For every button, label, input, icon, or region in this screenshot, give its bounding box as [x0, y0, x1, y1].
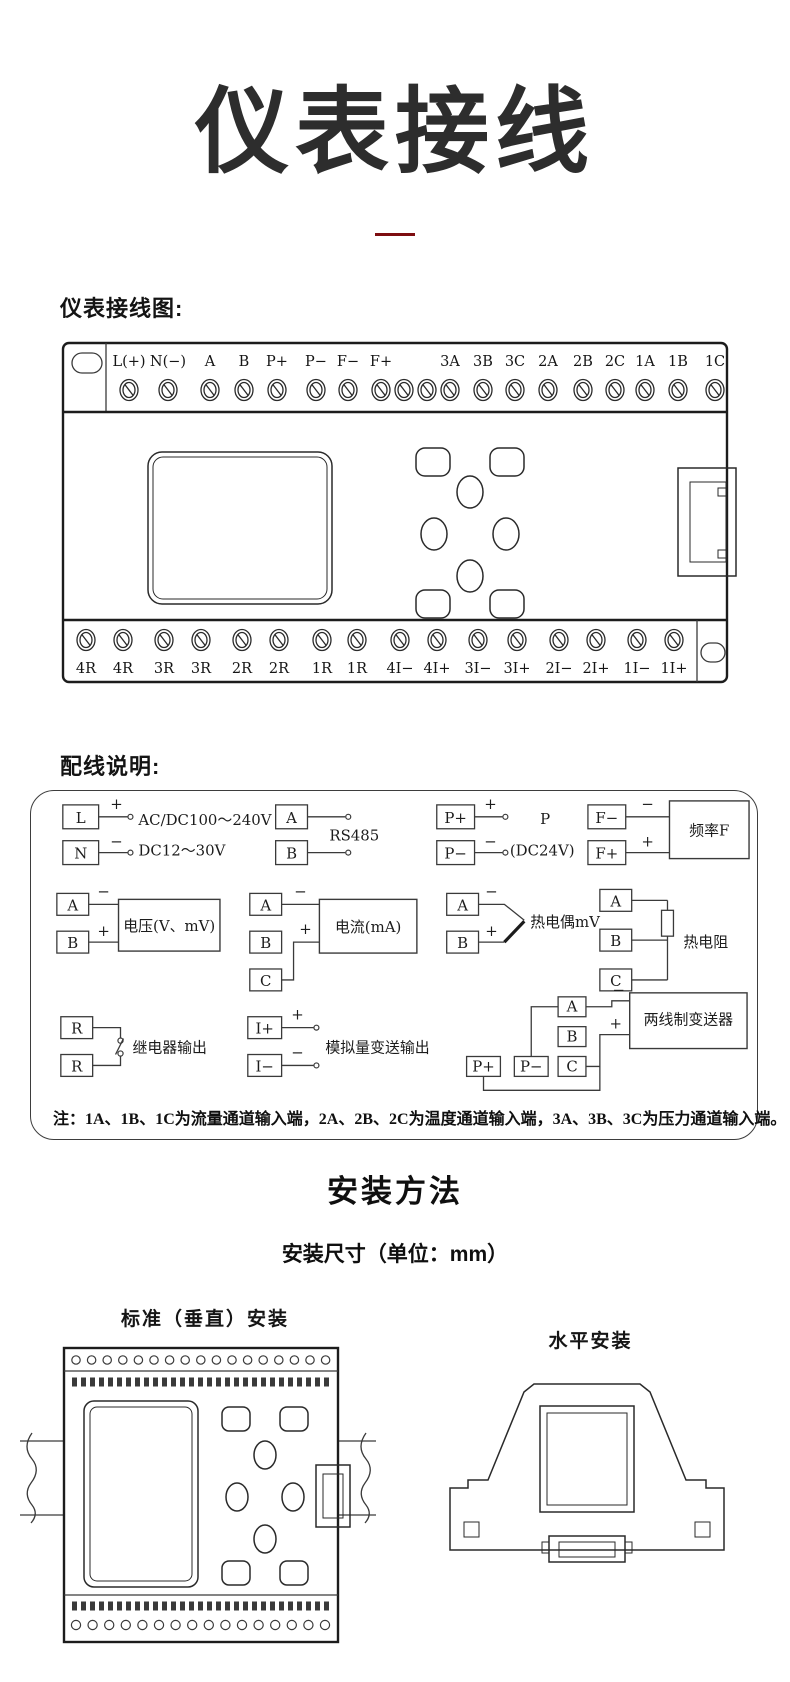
svg-text:3B: 3B [473, 354, 493, 370]
svg-text:A: A [285, 809, 297, 827]
manual-page: 仪表接线 仪表接线图: L(+) N(−) A B P+ P− F− F+ 3A… [0, 0, 790, 1682]
keypad-buttons [222, 1407, 308, 1585]
group-24v-supply: P+ + P− − P (DC24V) [437, 795, 575, 865]
group-frequency-input: F− − F+ + 频率F [588, 795, 749, 865]
svg-text:3I−: 3I− [464, 661, 491, 677]
svg-text:1R: 1R [312, 661, 333, 677]
svg-text:P: P [540, 810, 550, 828]
button-bottom-left [416, 590, 450, 618]
svg-text:L: L [76, 809, 86, 827]
svg-text:−: − [97, 882, 110, 900]
svg-text:B: B [286, 845, 297, 863]
title-accent-rule [375, 233, 415, 236]
group-analog-output: I+ + I− − 模拟量变送输出 [248, 1006, 430, 1077]
svg-text:−: − [485, 882, 498, 900]
svg-text:A: A [566, 998, 578, 1016]
svg-text:2R: 2R [269, 661, 290, 677]
top-terminal-screws [120, 380, 724, 401]
svg-text:2I+: 2I+ [582, 661, 609, 677]
svg-text:P+: P+ [444, 809, 467, 827]
left-foot [464, 1522, 479, 1537]
svg-text:P−: P− [520, 1057, 543, 1075]
bottom-terminal-screws [77, 630, 683, 651]
svg-text:继电器输出: 继电器输出 [132, 1039, 207, 1057]
svg-text:C: C [260, 972, 271, 990]
side-connector [316, 1465, 350, 1527]
svg-text:−: − [294, 882, 307, 900]
svg-text:1I+: 1I+ [660, 661, 687, 677]
svg-text:F−: F− [337, 354, 359, 370]
svg-text:P−: P− [444, 845, 467, 863]
svg-text:1R: 1R [347, 661, 368, 677]
horizontal-mount-diagram [428, 1360, 746, 1572]
svg-text:A: A [609, 892, 621, 910]
svg-text:+: + [110, 795, 123, 813]
top-left-slot [72, 353, 102, 373]
button-top-left [416, 448, 450, 476]
svg-text:电压(V、mV): 电压(V、mV) [123, 917, 215, 935]
svg-text:1C: 1C [705, 354, 725, 370]
group-rs485: A B RS485 [276, 805, 380, 865]
display-window [84, 1401, 198, 1587]
svg-text:频率F: 频率F [689, 822, 729, 840]
din-rail-right-wing [338, 1433, 376, 1523]
svg-text:热电偶mV: 热电偶mV [530, 913, 600, 931]
button-down [457, 560, 483, 592]
svg-text:热电阻: 热电阻 [683, 933, 728, 951]
bottom-right-slot [701, 643, 725, 662]
group-two-wire-transmitter: A B C P+ P− − + 两线制变送器 [467, 981, 747, 1090]
button-up [457, 476, 483, 508]
svg-text:N(−): N(−) [150, 354, 186, 370]
svg-text:4I−: 4I− [386, 661, 413, 677]
svg-text:RS485: RS485 [329, 827, 379, 845]
button-right [493, 518, 519, 550]
svg-text:−: − [641, 795, 654, 813]
svg-text:1A: 1A [635, 354, 655, 370]
svg-text:+: + [641, 833, 654, 851]
group-rtd-input: A B C 热电阻 [600, 889, 728, 990]
svg-text:N: N [74, 845, 87, 863]
wiring-schematics: L + N − AC/DC100～240V DC12～30V A B [31, 791, 757, 1141]
svg-text:3I+: 3I+ [503, 661, 530, 677]
svg-text:2C: 2C [605, 354, 625, 370]
svg-text:B: B [567, 1028, 578, 1046]
svg-text:P+: P+ [472, 1057, 495, 1075]
svg-text:F+: F+ [370, 354, 392, 370]
svg-text:(DC24V): (DC24V) [510, 842, 575, 860]
svg-text:3A: 3A [440, 354, 460, 370]
svg-text:模拟量变送输出: 模拟量变送输出 [325, 1039, 429, 1057]
group-voltage-input: A − B + 电压(V、mV) [57, 882, 220, 953]
din-rail-left-wing [20, 1433, 64, 1523]
vertical-mount-diagram [18, 1345, 378, 1645]
svg-text:A: A [259, 896, 271, 914]
button-bottom-right [490, 590, 524, 618]
svg-text:3C: 3C [505, 354, 525, 370]
svg-text:1I−: 1I− [623, 661, 650, 677]
svg-text:I−: I− [256, 1057, 274, 1075]
svg-text:−: − [484, 833, 497, 851]
svg-text:2A: 2A [538, 354, 558, 370]
display-window [148, 452, 332, 604]
svg-text:−: − [110, 833, 123, 851]
svg-text:F−: F− [595, 809, 618, 827]
svg-text:B: B [610, 932, 621, 950]
svg-text:+: + [484, 795, 497, 813]
svg-text:AC/DC100～240V: AC/DC100～240V [137, 811, 271, 829]
svg-text:R: R [71, 1057, 83, 1075]
svg-text:2B: 2B [573, 354, 593, 370]
wiring-instructions-box: L + N − AC/DC100～240V DC12～30V A B [30, 790, 758, 1140]
device-side-outline [450, 1384, 724, 1550]
right-foot [695, 1522, 710, 1537]
svg-text:A: A [204, 354, 216, 370]
svg-text:B: B [260, 934, 271, 952]
resistor-symbol [662, 910, 674, 936]
svg-text:2R: 2R [232, 661, 253, 677]
button-left [421, 518, 447, 550]
bottom-screw-row [71, 1620, 329, 1629]
svg-text:R: R [71, 1020, 83, 1038]
svg-text:I+: I+ [256, 1020, 274, 1038]
svg-text:3R: 3R [191, 661, 212, 677]
wiring-note: 注：1A、1B、1C为流量通道输入端，2A、2B、2C为温度通道输入端，3A、3… [53, 1105, 743, 1129]
svg-text:两线制变送器: 两线制变送器 [644, 1011, 734, 1029]
keypad-buttons [416, 448, 524, 618]
svg-text:F+: F+ [595, 845, 618, 863]
svg-text:4R: 4R [113, 661, 134, 677]
svg-text:4I+: 4I+ [423, 661, 450, 677]
group-thermocouple-input: A − B + 热电偶mV [447, 882, 600, 953]
svg-text:−: − [613, 981, 626, 999]
svg-text:+: + [610, 1015, 623, 1033]
install-section-title: 安装方法 [0, 1166, 790, 1211]
svg-text:电流(mA): 电流(mA) [335, 918, 401, 936]
svg-text:+: + [485, 922, 498, 940]
bottom-terminal-labels: 4R 4R 3R 3R 2R 2R 1R 1R 4I− 4I+ 3I− 3I+ … [76, 661, 688, 677]
svg-text:4R: 4R [76, 661, 97, 677]
svg-text:C: C [566, 1057, 577, 1075]
svg-text:P−: P− [305, 354, 327, 370]
top-terminal-labels: L(+) N(−) A B P+ P− F− F+ 3A 3B 3C 2A 2B… [112, 354, 725, 370]
horizontal-mount-label: 水平安装 [498, 1326, 683, 1353]
top-screw-row [72, 1356, 330, 1364]
svg-text:2I−: 2I− [545, 661, 572, 677]
svg-text:1B: 1B [668, 354, 688, 370]
group-current-input: A − B C + 电流(mA) [250, 882, 417, 990]
svg-text:B: B [67, 934, 78, 952]
svg-text:B: B [239, 354, 250, 370]
wiring-diagram-section-label: 仪表接线图: [60, 291, 183, 323]
wiring-instructions-section-label: 配线说明: [60, 749, 160, 781]
svg-text:+: + [299, 920, 312, 938]
din-rail-clip [542, 1536, 632, 1562]
install-dimensions-subtitle: 安装尺寸（单位：mm） [0, 1238, 790, 1268]
svg-text:P+: P+ [266, 354, 288, 370]
svg-text:B: B [457, 934, 468, 952]
svg-text:+: + [97, 922, 110, 940]
svg-text:A: A [66, 896, 78, 914]
side-window [540, 1406, 634, 1512]
instrument-terminal-diagram: L(+) N(−) A B P+ P− F− F+ 3A 3B 3C 2A 2B… [60, 340, 740, 685]
svg-text:A: A [456, 896, 468, 914]
svg-text:+: + [291, 1006, 304, 1024]
svg-text:L(+): L(+) [112, 354, 145, 370]
page-title: 仪表接线 [0, 56, 790, 192]
svg-text:DC12～30V: DC12～30V [138, 842, 225, 860]
group-power-supply: L + N − AC/DC100～240V DC12～30V [63, 795, 272, 865]
group-relay-output: R R 继电器输出 [61, 1017, 207, 1077]
device-front-outline [64, 1348, 338, 1642]
svg-text:3R: 3R [154, 661, 175, 677]
vertical-mount-label: 标准（垂直）安装 [85, 1304, 325, 1331]
button-top-right [490, 448, 524, 476]
svg-text:−: − [291, 1043, 304, 1061]
